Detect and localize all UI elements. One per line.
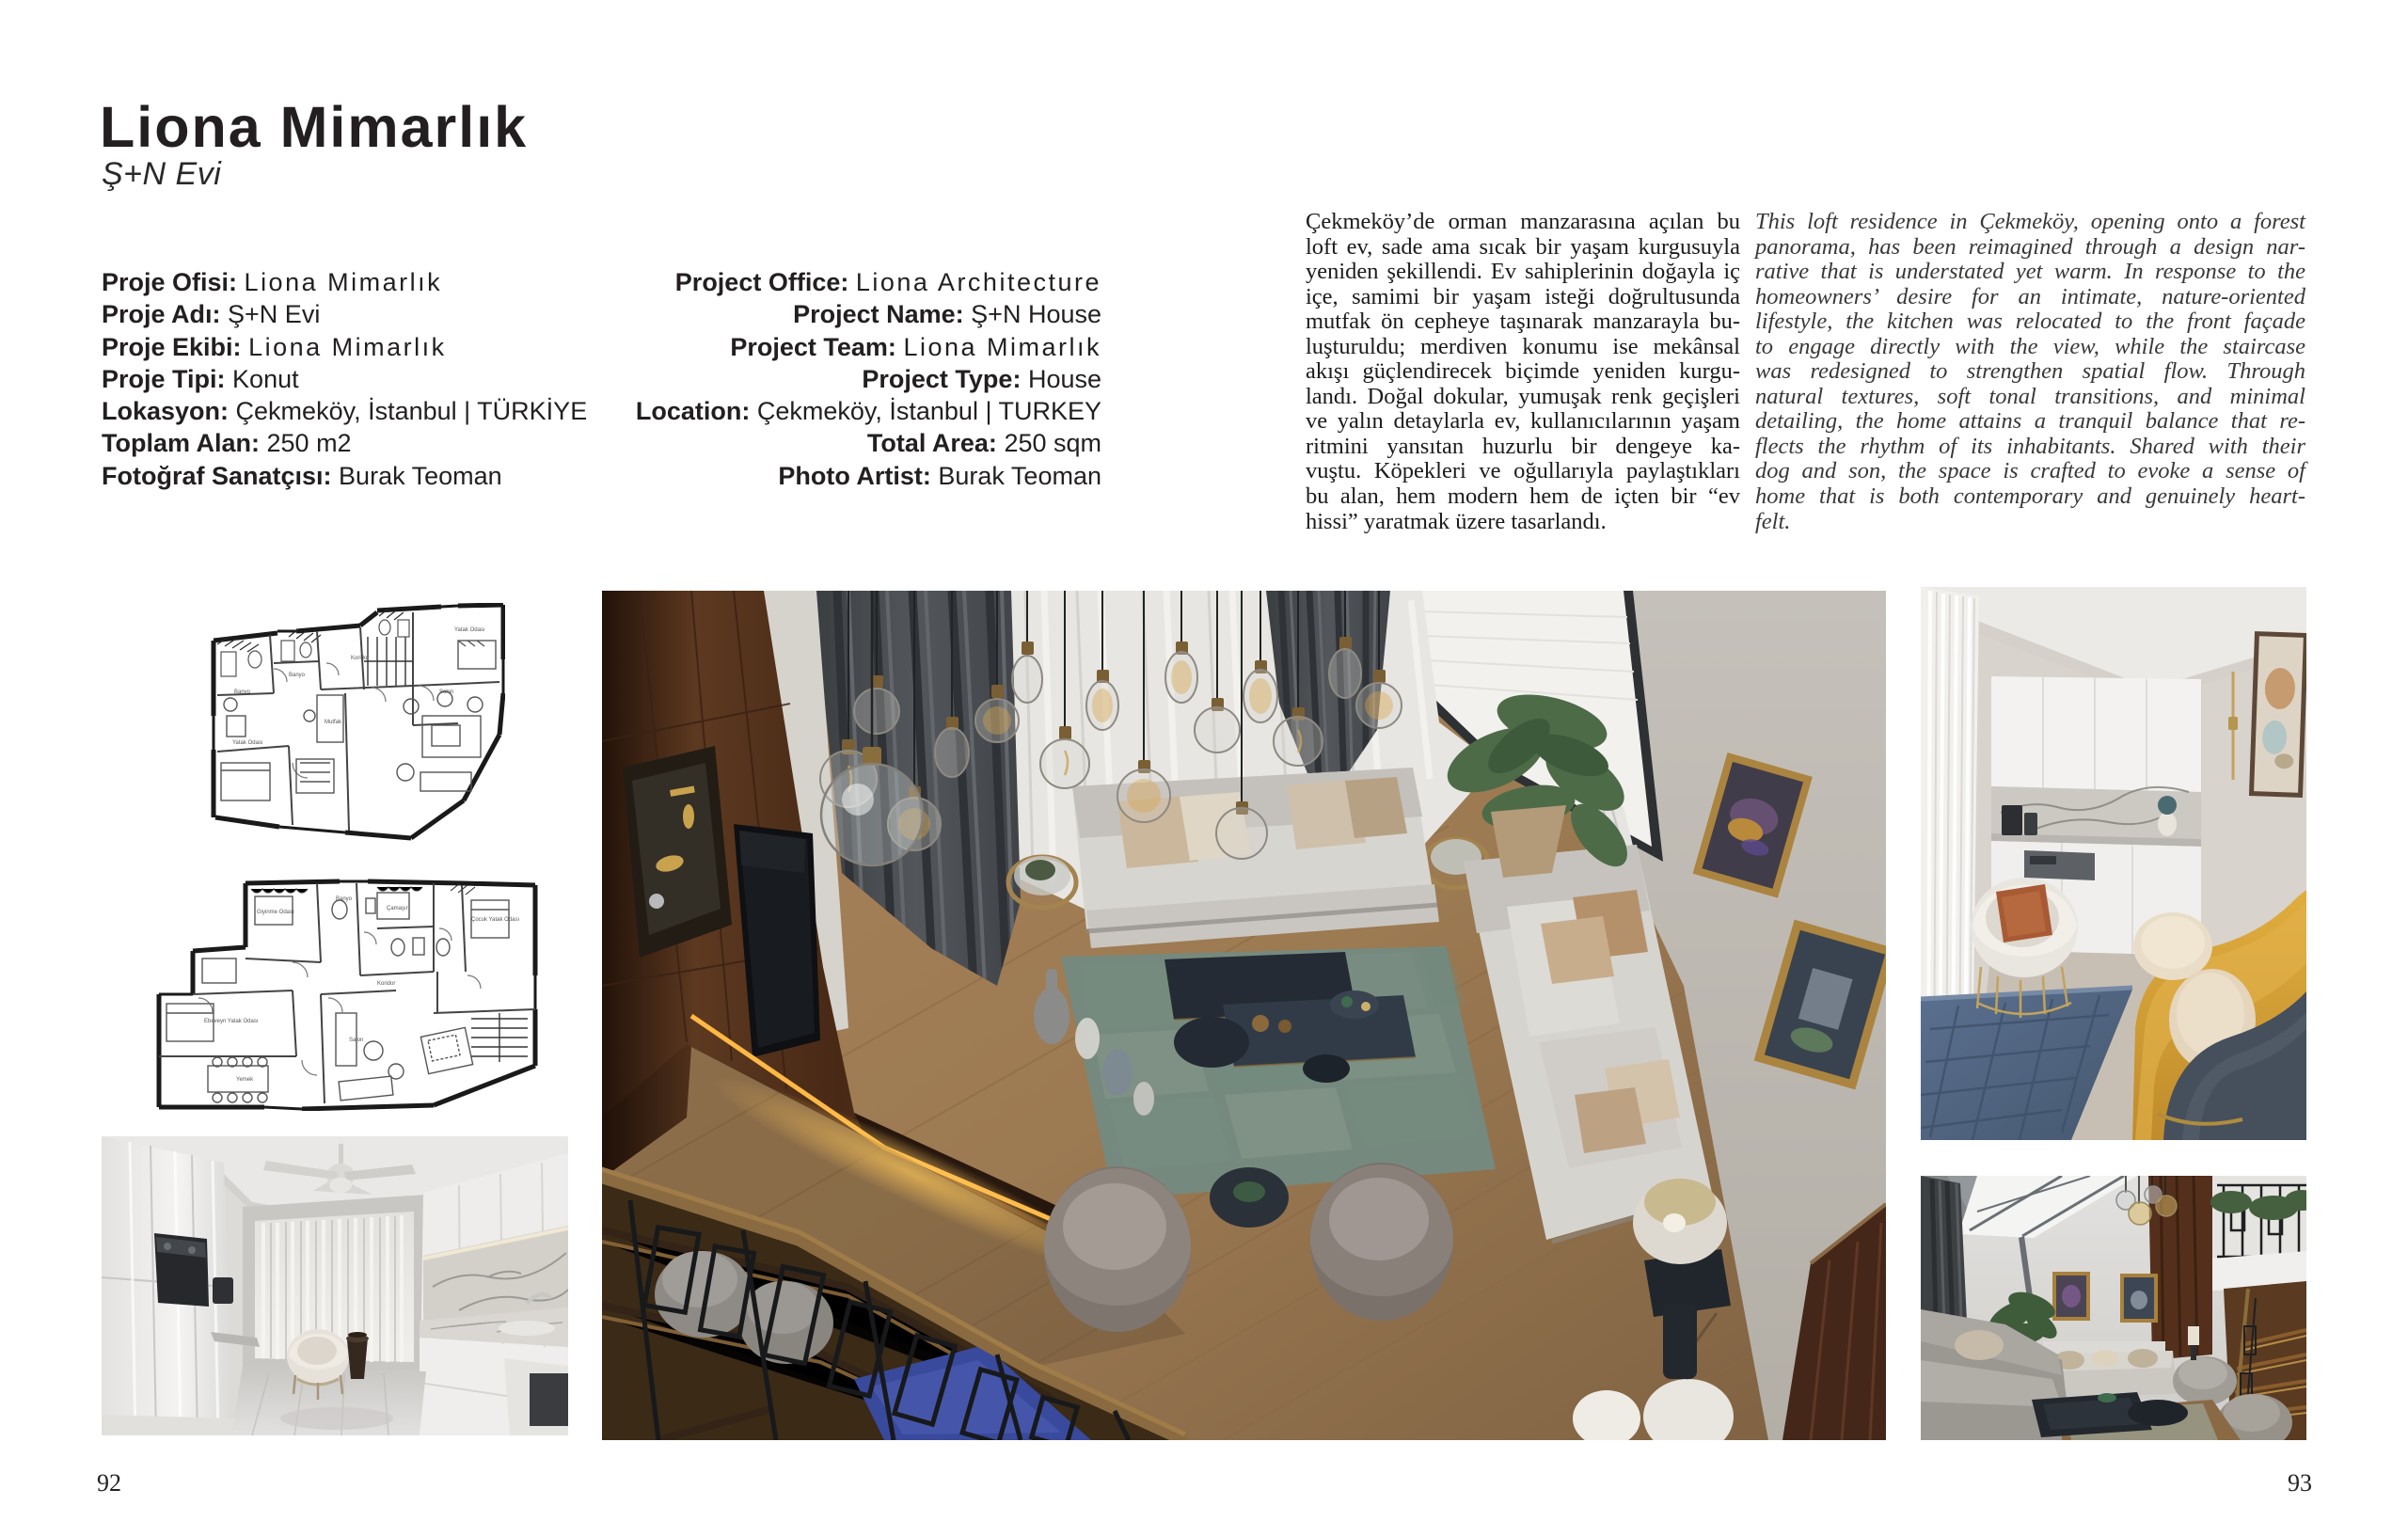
- svg-text:Banyo: Banyo: [336, 896, 353, 902]
- svg-text:Banyo: Banyo: [289, 673, 306, 678]
- svg-text:Yemek: Yemek: [236, 1077, 254, 1083]
- svg-text:Koridor: Koridor: [377, 981, 395, 987]
- svg-text:Yatak Odası: Yatak Odası: [232, 740, 263, 746]
- svg-text:Çamaşır: Çamaşır: [387, 906, 408, 911]
- svg-text:Çocuk Yatak Odası: Çocuk Yatak Odası: [471, 917, 519, 923]
- svg-text:Koridor: Koridor: [351, 656, 369, 661]
- svg-text:Salon: Salon: [349, 1038, 363, 1043]
- svg-text:Salon: Salon: [439, 689, 453, 695]
- svg-text:Ebeveyn Yatak Odası: Ebeveyn Yatak Odası: [204, 1019, 259, 1024]
- svg-text:Mutfak: Mutfak: [325, 720, 342, 725]
- svg-text:Banyo: Banyo: [234, 689, 251, 695]
- svg-text:Giyinme Odası: Giyinme Odası: [257, 910, 294, 915]
- svg-text:Yatak Odası: Yatak Odası: [454, 627, 485, 633]
